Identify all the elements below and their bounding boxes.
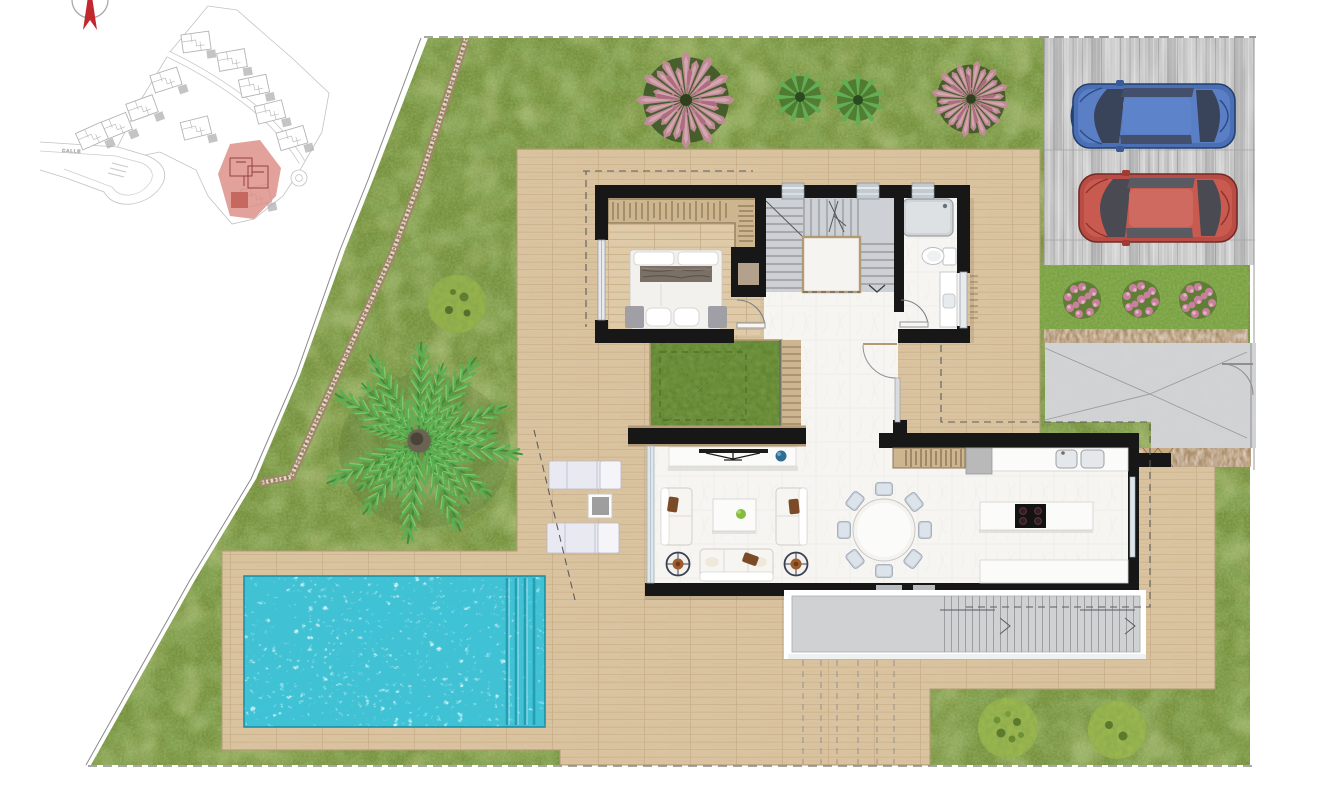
svg-text:CALLE: CALLE (62, 148, 82, 154)
